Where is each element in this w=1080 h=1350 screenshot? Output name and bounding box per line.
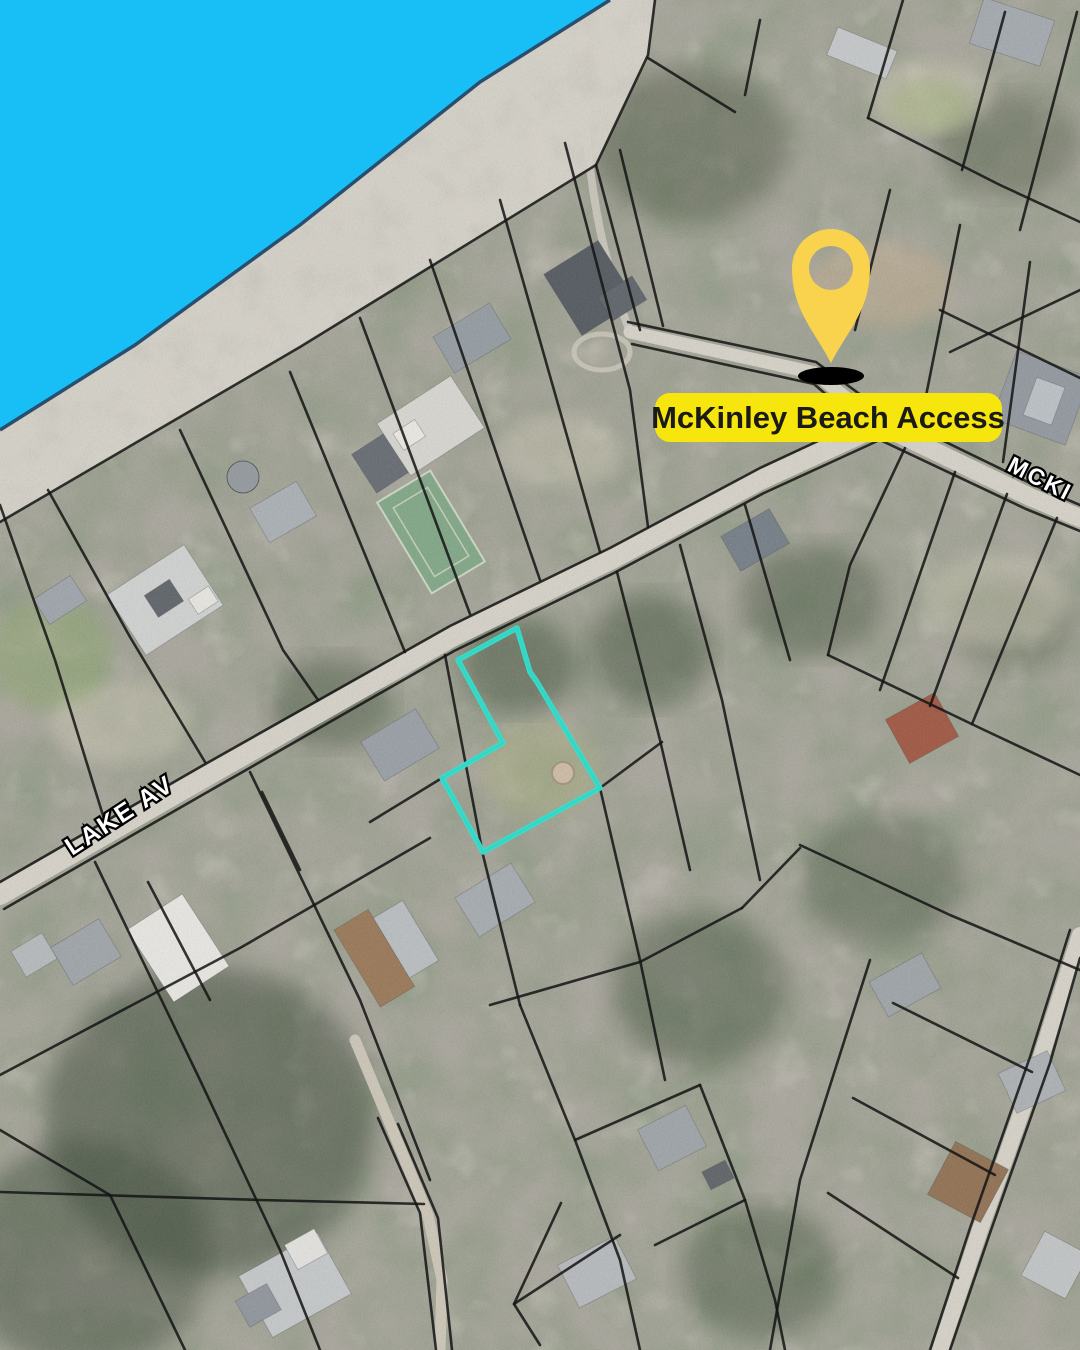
aerial-map: LAKE AV MCKI McKinley Beach Access [0,0,1080,1350]
pin-label-text: McKinley Beach Access [651,400,1005,435]
map-canvas[interactable]: LAKE AV MCKI McKinley Beach Access [0,0,1080,1350]
pin-shadow [798,367,864,385]
pin-label[interactable]: McKinley Beach Access [651,393,1005,442]
